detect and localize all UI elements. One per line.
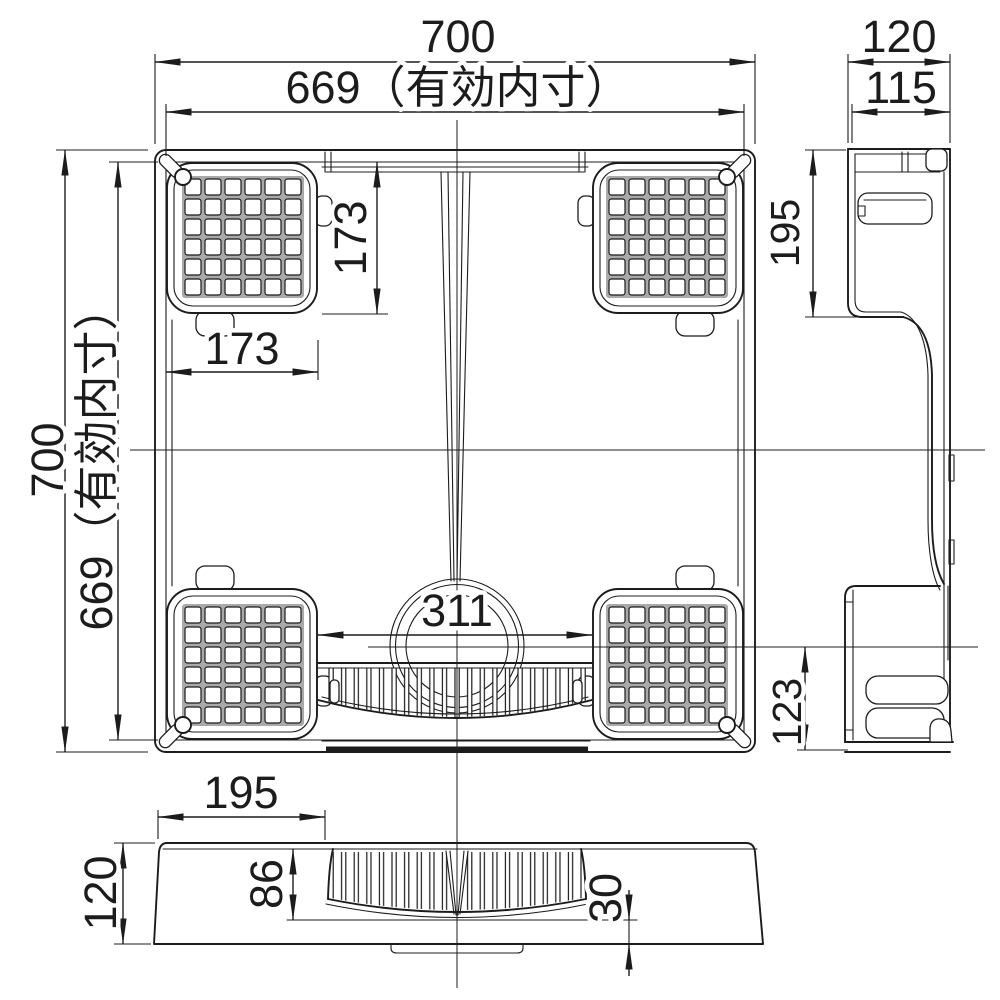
dim-label: 173	[325, 200, 376, 275]
water-channel	[441, 172, 470, 581]
dim-label: 195	[762, 199, 808, 267]
dim-plan-inner-height: 669（有効内寸）	[71, 162, 158, 740]
dim-side-drain-depth: 123	[764, 647, 848, 750]
dim-label: 311	[421, 585, 493, 636]
dim-label: 120	[861, 11, 936, 62]
dim-label: 173	[204, 323, 279, 374]
plan-view	[155, 150, 755, 752]
dim-label: 115	[865, 62, 937, 113]
dim-label: 669（有効内寸）	[285, 62, 630, 113]
dim-label: 120	[75, 855, 126, 930]
dim-label: 30	[580, 873, 631, 923]
pad-top-left	[157, 152, 332, 336]
dim-drain-span: 311	[318, 585, 592, 636]
dim-front-height: 120	[75, 843, 155, 944]
foot	[930, 719, 952, 742]
pad-bottom-left	[157, 566, 332, 750]
dim-side-depth: 195	[762, 150, 860, 317]
dim-pad-width: 173	[166, 323, 318, 380]
pad-side-profile	[858, 193, 932, 224]
drawing-page: 700 669（有効内寸） 120 115 700 669（有効内寸） 173 …	[0, 0, 1000, 1000]
dim-label: 700	[22, 422, 73, 497]
technical-drawing: 700 669（有効内寸） 120 115 700 669（有効内寸） 173 …	[0, 0, 1000, 1000]
dim-front-base-height: 30	[580, 873, 631, 976]
pad-top-right	[578, 152, 753, 336]
dim-front-grille-height: 86	[241, 849, 330, 920]
pad-bottom-right	[578, 566, 753, 750]
drain-grille-plan	[318, 663, 592, 739]
dim-side-inner-width: 115	[852, 62, 950, 143]
dim-plan-inner-width: 669（有効内寸）	[166, 62, 744, 156]
dim-label: 86	[241, 859, 292, 909]
drain-box-side	[845, 586, 953, 752]
dim-label: 700	[420, 11, 495, 62]
dim-label: 669（有効内寸）	[71, 285, 122, 630]
dim-pad-height: 173	[322, 162, 388, 314]
dim-label: 195	[203, 767, 278, 818]
dim-front-pad-span: 195	[158, 767, 325, 840]
dim-label: 123	[764, 678, 810, 746]
